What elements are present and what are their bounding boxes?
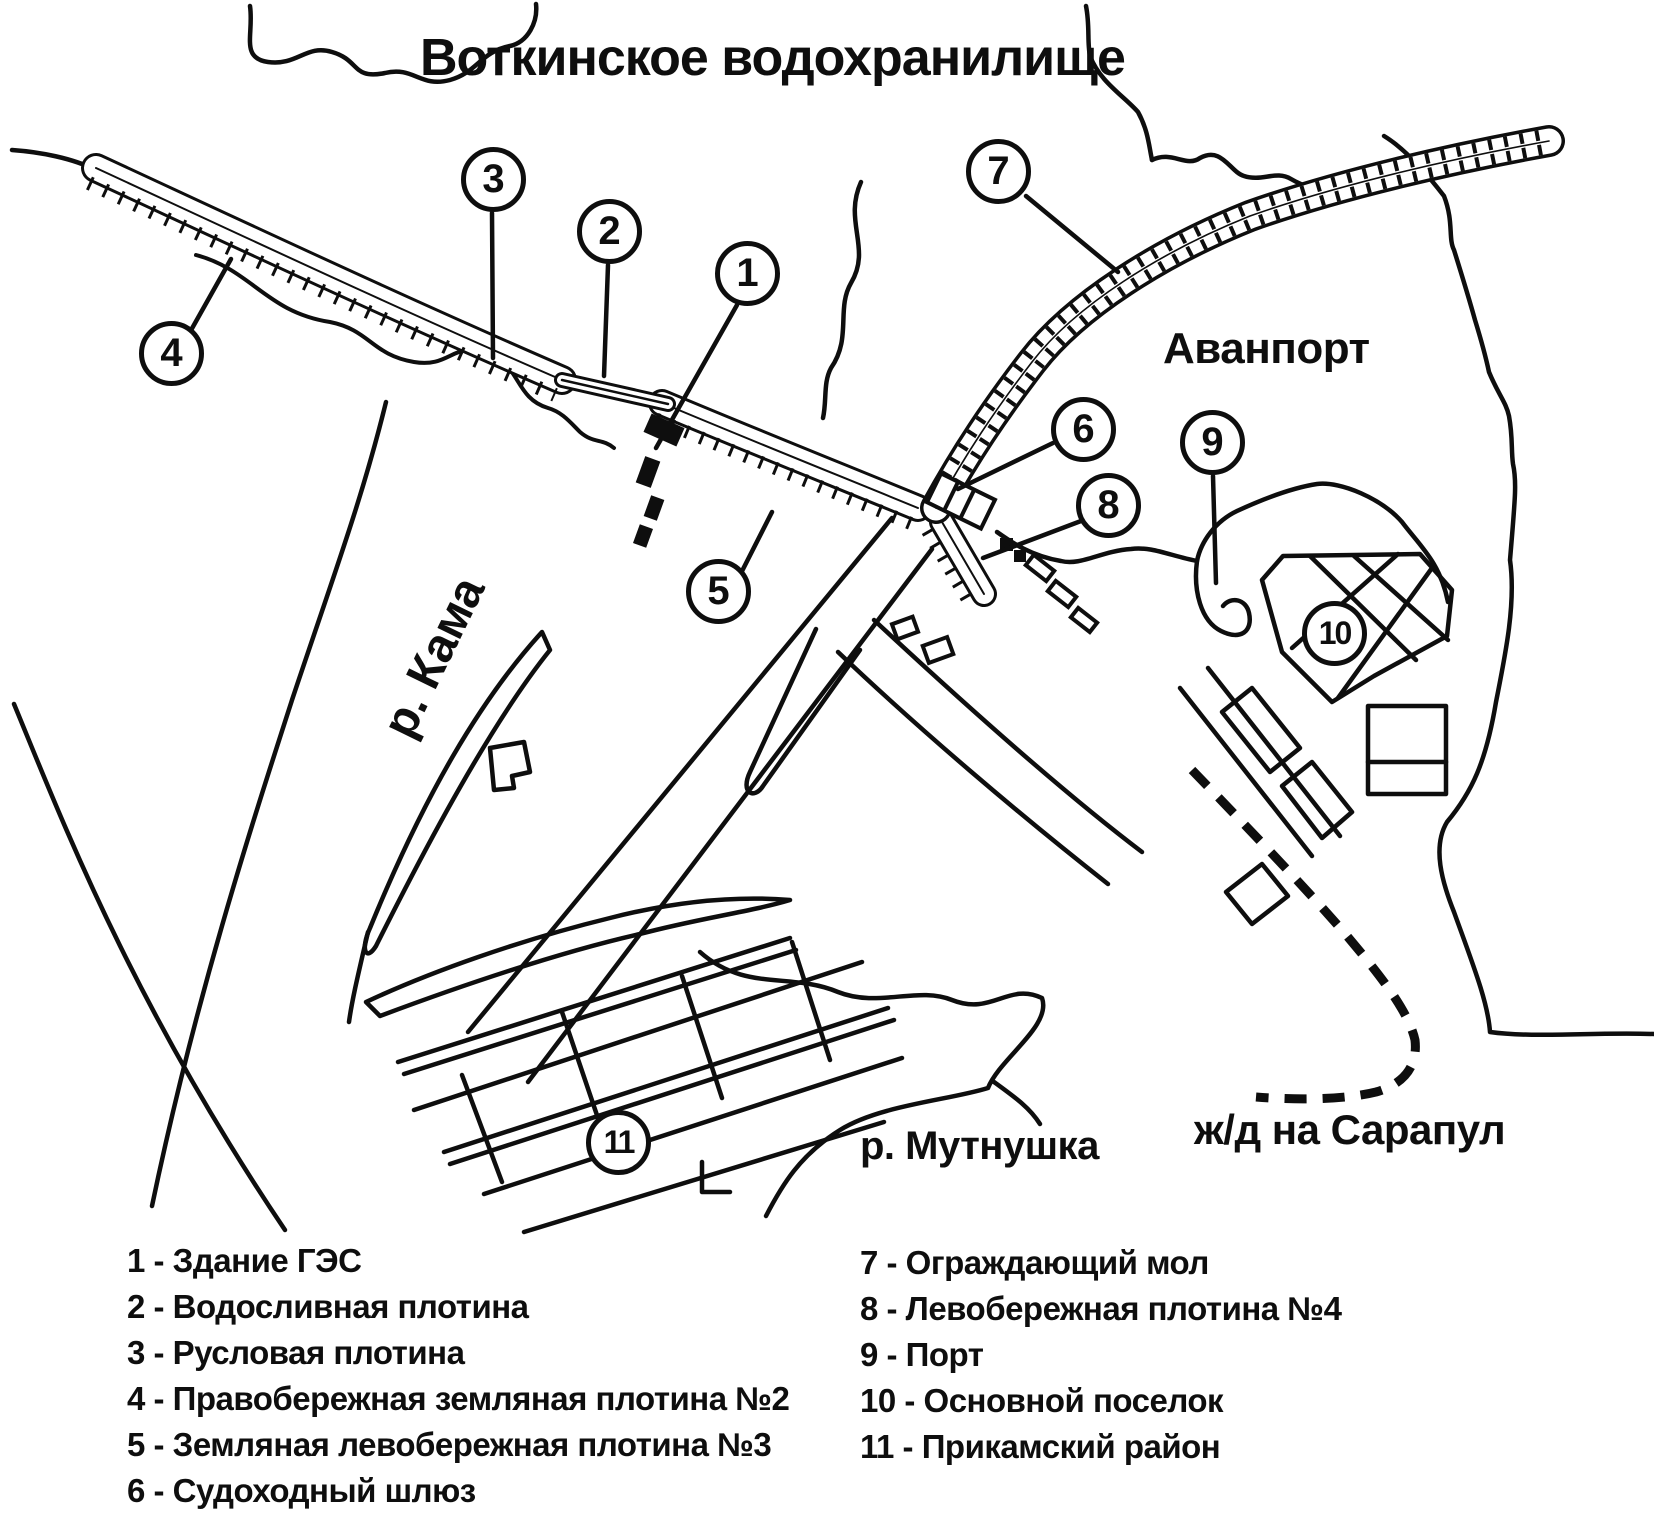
railway-dashed-line bbox=[1192, 770, 1415, 1099]
legend-column-right: 7 - Ограждающий мол 8 - Левобережная пло… bbox=[860, 1240, 1341, 1470]
marker-5: 5 bbox=[686, 559, 751, 624]
mutnushka-river-lines bbox=[700, 952, 1043, 1216]
legend-item-6: 6 - Судоходный шлюз bbox=[127, 1468, 789, 1514]
marker-4: 4 bbox=[139, 321, 204, 386]
legend-item-1: 1 - Здание ГЭС bbox=[127, 1238, 789, 1284]
legend-item-7: 7 - Ограждающий мол bbox=[860, 1240, 1341, 1286]
marker-7: 7 bbox=[966, 139, 1031, 204]
label-railway-to-sarapul: ж/д на Сарапул bbox=[1194, 1106, 1505, 1154]
legend-item-10: 10 - Основной поселок bbox=[860, 1378, 1341, 1424]
callout-leader-lines bbox=[190, 196, 1216, 583]
marker-8: 8 bbox=[1076, 473, 1141, 538]
marker-9: 9 bbox=[1180, 410, 1245, 475]
legend-item-3: 3 - Русловая плотина bbox=[127, 1330, 789, 1376]
marker-6: 6 bbox=[1051, 397, 1116, 462]
marker-11: 11 bbox=[586, 1110, 651, 1175]
label-mutnushka-river: р. Мутнушка bbox=[860, 1124, 1099, 1169]
marker-2: 2 bbox=[577, 199, 642, 264]
legend-item-4: 4 - Правобережная земляная плотина №2 bbox=[127, 1376, 789, 1422]
legend-item-2: 2 - Водосливная плотина bbox=[127, 1284, 789, 1330]
legend-item-8: 8 - Левобережная плотина №4 bbox=[860, 1286, 1341, 1332]
marker-1: 1 bbox=[715, 241, 780, 306]
dam-hatched-bands bbox=[89, 168, 984, 603]
hpp-buildings bbox=[633, 414, 685, 548]
legend-item-11: 11 - Прикамский район bbox=[860, 1424, 1341, 1470]
legend-item-9: 9 - Порт bbox=[860, 1332, 1341, 1378]
map-page: Воткинское водохранилище Аванпорт р. Кам… bbox=[0, 0, 1654, 1517]
marker-3: 3 bbox=[461, 147, 526, 212]
spillway-dam bbox=[562, 380, 668, 404]
map-title: Воткинское водохранилище bbox=[420, 28, 1080, 88]
legend-column-left: 1 - Здание ГЭС 2 - Водосливная плотина 3… bbox=[127, 1238, 789, 1514]
marker-10: 10 bbox=[1302, 601, 1367, 666]
legend-item-5: 5 - Земляная левобережная плотина №3 bbox=[127, 1422, 789, 1468]
label-avanport: Аванпорт bbox=[1163, 324, 1370, 374]
